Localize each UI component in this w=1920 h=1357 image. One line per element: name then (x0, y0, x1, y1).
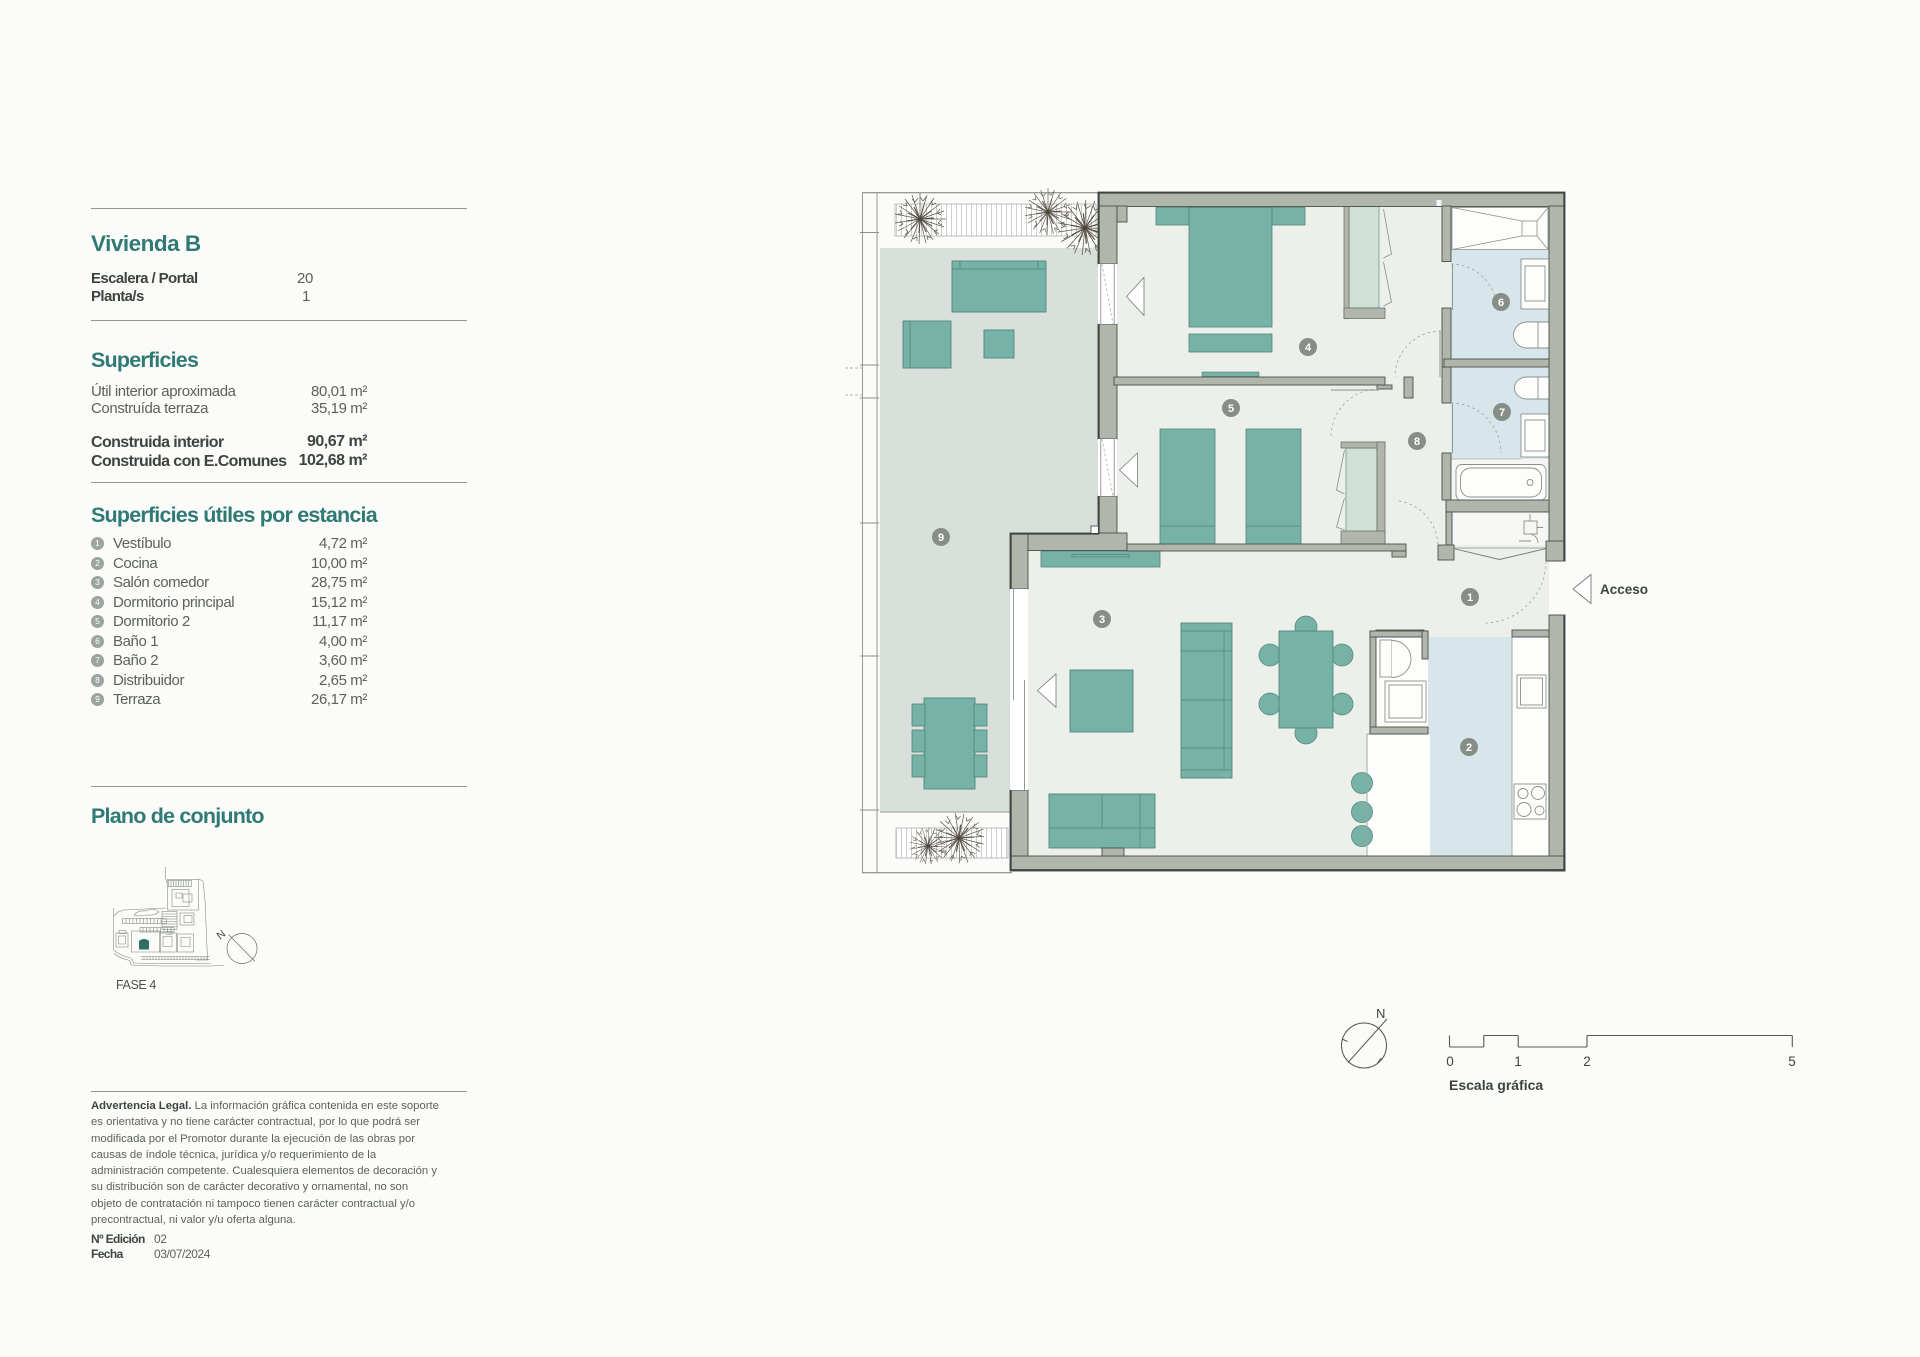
svg-text:N: N (1376, 1006, 1385, 1021)
svg-text:1: 1 (1467, 592, 1473, 604)
svg-text:3: 3 (1099, 614, 1105, 626)
svg-text:2: 2 (1583, 1054, 1591, 1069)
svg-text:7: 7 (1499, 407, 1505, 419)
svg-text:Escala gráfica: Escala gráfica (1449, 1077, 1543, 1093)
svg-text:9: 9 (938, 532, 944, 544)
svg-text:Acceso: Acceso (1600, 582, 1648, 597)
svg-text:0: 0 (1446, 1054, 1454, 1069)
svg-text:8: 8 (1414, 436, 1420, 448)
svg-text:5: 5 (1788, 1054, 1796, 1069)
svg-text:N: N (215, 928, 229, 942)
svg-text:1: 1 (1514, 1054, 1522, 1069)
svg-text:4: 4 (1305, 342, 1312, 354)
svg-text:5: 5 (1228, 403, 1234, 415)
svg-text:2: 2 (1466, 742, 1472, 754)
svg-text:6: 6 (1498, 297, 1504, 309)
